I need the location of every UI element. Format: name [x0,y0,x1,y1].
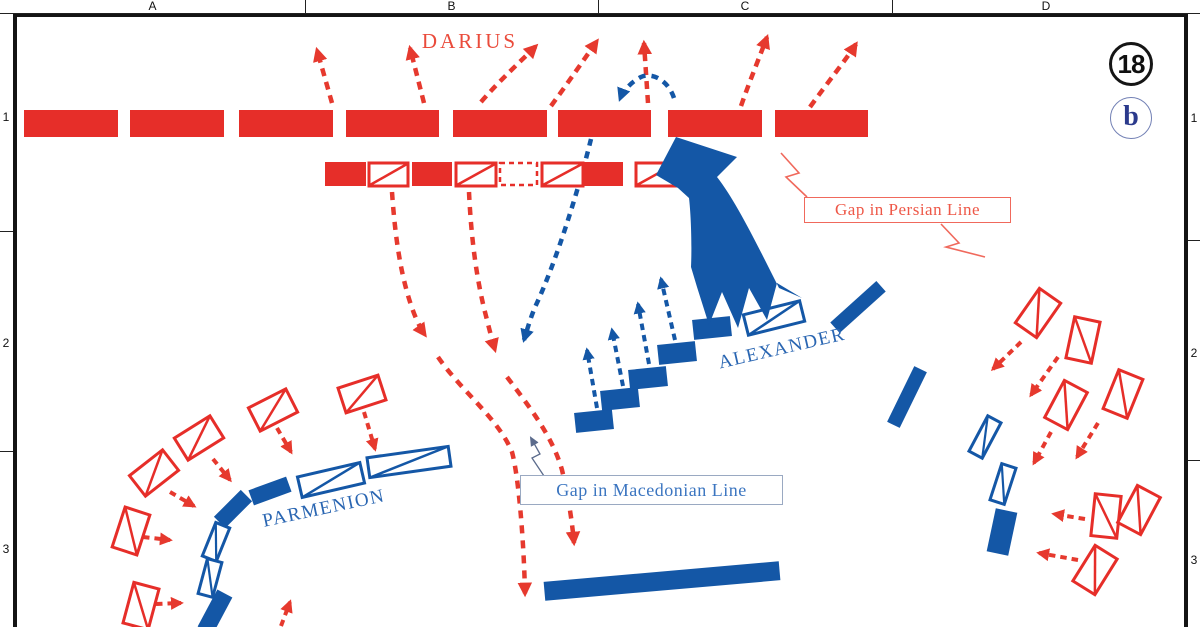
grid-tick [1188,460,1200,461]
grid-column-a: A [0,0,305,13]
grid-column-strip: A B C D [0,0,1200,14]
alexander-charge-arrow [656,137,802,328]
grid-tick [598,0,599,13]
grid-row-3-right: 3 [1188,553,1200,567]
sheet-letter-badge: b [1110,97,1152,139]
macedonian-units [198,281,1018,627]
grid-tick [892,0,893,13]
grid-column-d: D [892,0,1200,13]
gap-in-persian-line-callout: Gap in Persian Line [804,197,1011,223]
persian-retreat-arrows [317,37,856,107]
grid-row-1-right: 1 [1188,111,1200,125]
sheet-number-badge: 18 [1109,42,1153,86]
persian-main-line [24,110,868,137]
grid-tick [1188,240,1200,241]
map-graphics [0,0,1200,627]
persian-second-line [325,162,676,186]
battle-map-sheet: A B C D 1 2 3 1 2 3 18 b DARIUS ALEXANDE… [0,0,1200,627]
grid-row-2-left: 2 [0,336,12,350]
persian-cavalry-right-wing [1015,288,1160,594]
gap-dissolved-unit [500,163,537,185]
grid-row-1-left: 1 [0,110,12,124]
persian-breakthrough-arrows [392,192,574,594]
grid-row-3-left: 3 [0,542,12,556]
macedonian-phalanx-bar [544,561,781,600]
grid-tick [305,0,306,13]
darius-label: DARIUS [408,29,532,54]
gap-macedonian-callout-pointer [531,438,544,476]
grid-tick [0,451,13,452]
gap-in-macedonian-line-callout: Gap in Macedonian Line [520,475,783,505]
grid-column-c: C [598,0,892,13]
grid-column-b: B [305,0,598,13]
grid-row-2-right: 2 [1188,346,1200,360]
macedonian-cavalry-units [198,301,1016,598]
grid-tick [0,231,13,232]
